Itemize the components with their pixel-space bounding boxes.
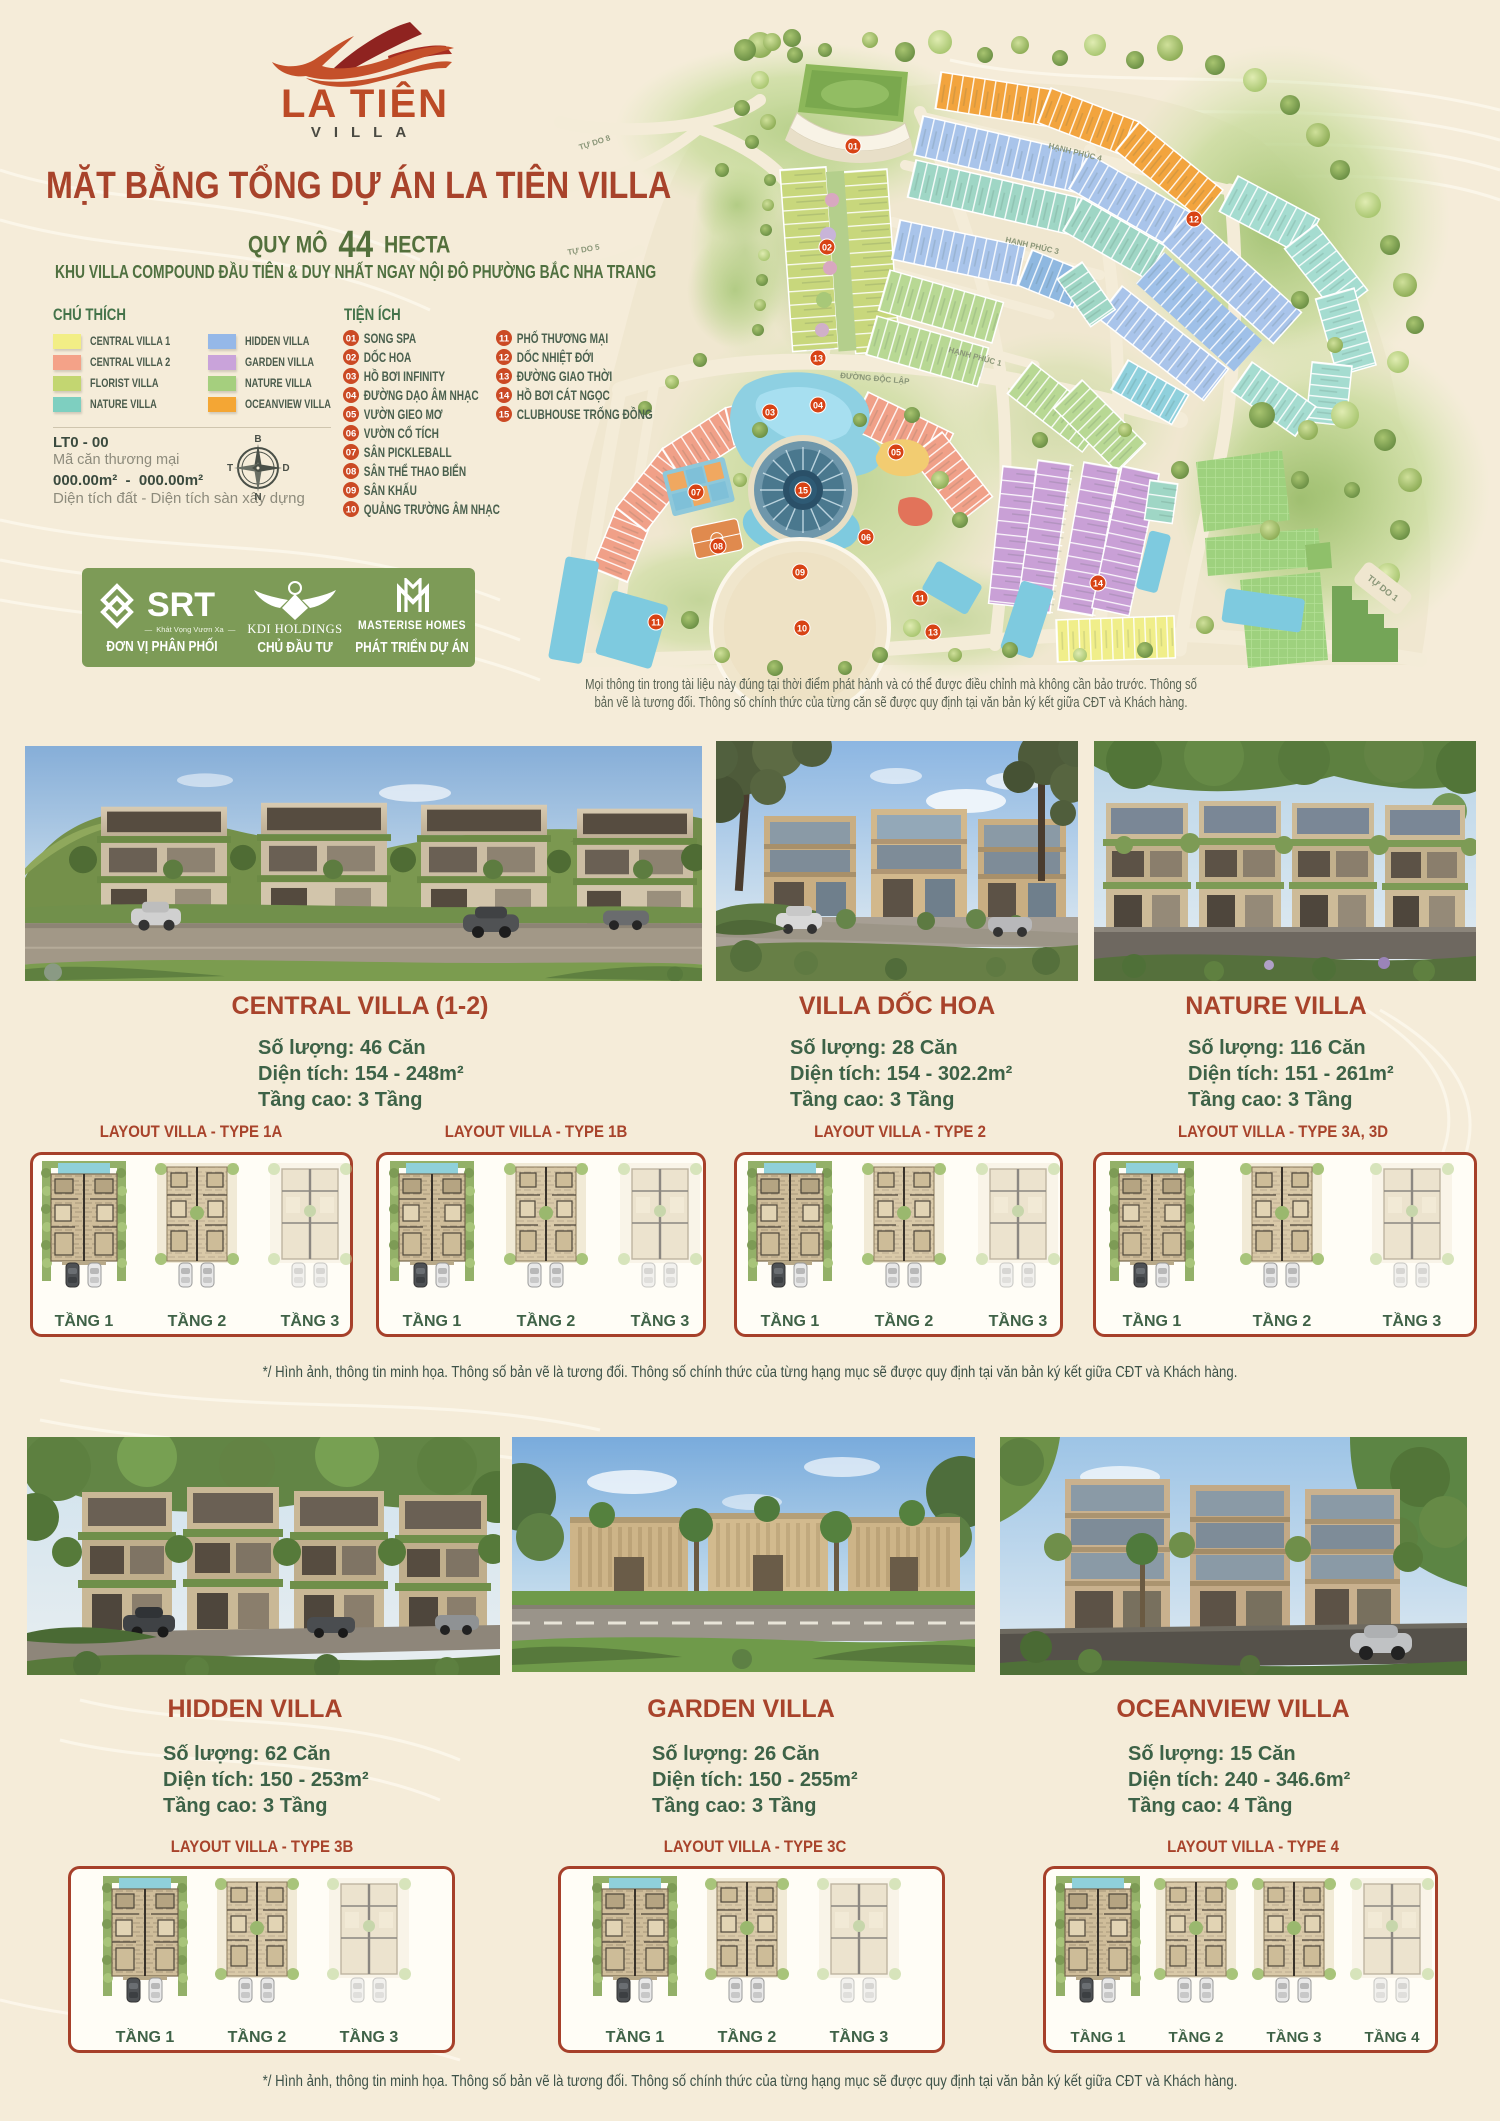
svg-text:15: 15 bbox=[499, 410, 510, 421]
svg-text:DỐC HOA: DỐC HOA bbox=[364, 348, 412, 365]
svg-text:HỒ BƠI CÁT NGỌC: HỒ BƠI CÁT NGỌC bbox=[517, 386, 610, 403]
svg-text:TẦNG 2: TẦNG 2 bbox=[1253, 1311, 1312, 1330]
svg-text:TẦNG 1: TẦNG 1 bbox=[116, 2027, 175, 2046]
svg-text:TẦNG 1: TẦNG 1 bbox=[1070, 2029, 1125, 2046]
svg-text:06: 06 bbox=[861, 533, 871, 543]
svg-text:LA TIÊN: LA TIÊN bbox=[281, 80, 449, 126]
svg-text:TẦNG 1: TẦNG 1 bbox=[1123, 1311, 1182, 1330]
svg-text:13: 13 bbox=[813, 354, 823, 364]
svg-text:TẦNG 3: TẦNG 3 bbox=[281, 1311, 340, 1330]
svg-text:TẦNG 3: TẦNG 3 bbox=[631, 1311, 690, 1330]
svg-text:10: 10 bbox=[797, 624, 807, 634]
svg-text:09: 09 bbox=[795, 568, 805, 578]
svg-text:15: 15 bbox=[798, 486, 808, 496]
svg-text:TẦNG 3: TẦNG 3 bbox=[830, 2027, 889, 2046]
svg-text:CLUBHOUSE TRỐNG ĐỒNG: CLUBHOUSE TRỐNG ĐỒNG bbox=[517, 405, 653, 422]
svg-text:ĐƯỜNG DẠO ÂM NHẠC: ĐƯỜNG DẠO ÂM NHẠC bbox=[364, 386, 479, 403]
svg-text:08: 08 bbox=[713, 542, 723, 552]
svg-text:TẦNG 3: TẦNG 3 bbox=[989, 1311, 1048, 1330]
svg-text:05: 05 bbox=[891, 448, 901, 458]
svg-text:TẦNG 1: TẦNG 1 bbox=[403, 1311, 462, 1330]
svg-text:PHỐ THƯƠNG MẠI: PHỐ THƯƠNG MẠI bbox=[517, 329, 608, 346]
svg-text:TẦNG 4: TẦNG 4 bbox=[1364, 2029, 1420, 2046]
svg-text:SONG SPA: SONG SPA bbox=[364, 330, 417, 346]
svg-text:D: D bbox=[282, 463, 289, 474]
svg-text:VƯỜN GIEO MƠ: VƯỜN GIEO MƠ bbox=[364, 405, 443, 422]
svg-text:14: 14 bbox=[1093, 579, 1103, 589]
svg-text:05: 05 bbox=[346, 410, 357, 421]
svg-text:TẦNG 1: TẦNG 1 bbox=[761, 1311, 820, 1330]
svg-text:01: 01 bbox=[848, 142, 858, 152]
svg-text:TẦNG 1: TẦNG 1 bbox=[606, 2027, 665, 2046]
svg-text:11: 11 bbox=[915, 594, 925, 604]
svg-text:TẦNG 1: TẦNG 1 bbox=[55, 1311, 114, 1330]
svg-text:13: 13 bbox=[928, 628, 938, 638]
svg-text:06: 06 bbox=[346, 429, 357, 440]
svg-text:11: 11 bbox=[499, 334, 510, 345]
svg-text:TẦNG 3: TẦNG 3 bbox=[1383, 1311, 1442, 1330]
svg-text:TỰ DO 5: TỰ DO 5 bbox=[567, 242, 601, 257]
svg-text:VILLA: VILLA bbox=[311, 124, 419, 141]
svg-text:04: 04 bbox=[813, 401, 823, 411]
svg-text:TỰ DO 8: TỰ DO 8 bbox=[578, 133, 612, 152]
svg-text:14: 14 bbox=[499, 391, 510, 402]
svg-text:12: 12 bbox=[1189, 215, 1199, 225]
svg-text:ĐƯỜNG GIAO THỜI: ĐƯỜNG GIAO THỜI bbox=[517, 367, 612, 384]
svg-text:TẦNG 2: TẦNG 2 bbox=[875, 1311, 934, 1330]
svg-text:07: 07 bbox=[346, 448, 357, 459]
svg-text:TẦNG 3: TẦNG 3 bbox=[1266, 2029, 1321, 2046]
svg-text:SRT: SRT bbox=[147, 586, 215, 624]
svg-text:T: T bbox=[227, 463, 233, 474]
svg-text:DỐC NHIỆT ĐỚI: DỐC NHIỆT ĐỚI bbox=[517, 348, 594, 365]
svg-text:TẦNG 2: TẦNG 2 bbox=[168, 1311, 227, 1330]
svg-text:QUẢNG TRƯỜNG ÂM NHẠC: QUẢNG TRƯỜNG ÂM NHẠC bbox=[364, 500, 500, 517]
svg-text:TẦNG 2: TẦNG 2 bbox=[228, 2027, 287, 2046]
svg-text:N: N bbox=[254, 492, 261, 501]
svg-text:VƯỜN CỔ TÍCH: VƯỜN CỔ TÍCH bbox=[364, 424, 439, 441]
svg-text:TẦNG 2: TẦNG 2 bbox=[517, 1311, 576, 1330]
svg-text:01: 01 bbox=[346, 334, 357, 345]
svg-text:SÂN PICKLEBALL: SÂN PICKLEBALL bbox=[364, 443, 452, 460]
svg-text:09: 09 bbox=[346, 486, 357, 497]
svg-text:B: B bbox=[254, 435, 261, 445]
svg-text:02: 02 bbox=[346, 353, 357, 364]
svg-text:HỒ BƠI INFINITY: HỒ BƠI INFINITY bbox=[364, 367, 445, 384]
svg-text:04: 04 bbox=[346, 391, 357, 402]
svg-text:11: 11 bbox=[651, 618, 661, 628]
svg-text:02: 02 bbox=[822, 243, 832, 253]
svg-text:SÂN KHẤU: SÂN KHẤU bbox=[364, 481, 417, 498]
svg-text:TẦNG 3: TẦNG 3 bbox=[340, 2027, 399, 2046]
svg-text:03: 03 bbox=[346, 372, 357, 383]
svg-text:10: 10 bbox=[346, 505, 357, 516]
svg-text:TẦNG 2: TẦNG 2 bbox=[1168, 2029, 1223, 2046]
svg-text:13: 13 bbox=[499, 372, 510, 383]
svg-text:TẦNG 2: TẦNG 2 bbox=[718, 2027, 777, 2046]
svg-text:08: 08 bbox=[346, 467, 357, 478]
svg-text:SÂN THỂ THAO BIỂN: SÂN THỂ THAO BIỂN bbox=[364, 462, 466, 479]
svg-text:12: 12 bbox=[499, 353, 510, 364]
